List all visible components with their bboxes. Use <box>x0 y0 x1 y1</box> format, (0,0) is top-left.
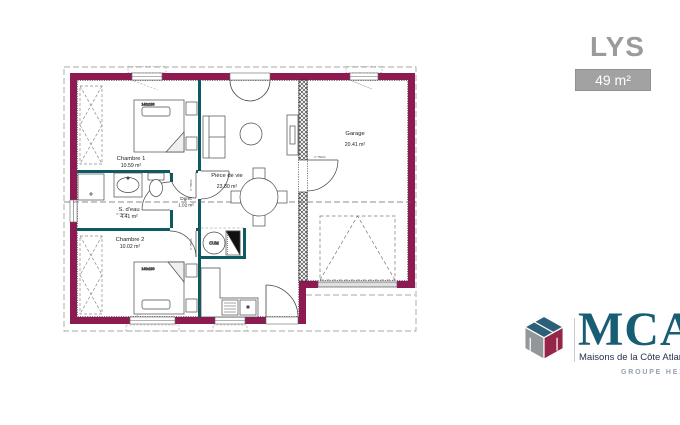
bed-chambre1 <box>134 100 197 152</box>
bed-size-label: 140x190 <box>141 267 154 271</box>
water-heater: CUM <box>203 232 225 254</box>
logo-divider <box>574 318 575 362</box>
room-name-garage: Garage <box>345 131 364 137</box>
kitchen-counter <box>201 268 258 317</box>
logo-acronym: MCA <box>578 302 680 357</box>
door-code-label: P 75004 <box>189 179 193 190</box>
room-area-garage: 20.41 m² <box>345 142 366 148</box>
room-name-chambre2: Chambre 2 <box>116 237 145 243</box>
room-area-piecedevie: 23.80 m² <box>217 184 238 190</box>
chambre1-furniture: 140x190 <box>80 86 197 164</box>
shower <box>78 174 104 200</box>
windows <box>70 67 382 332</box>
page: P 75004 P 75004 P 75004 P 75004 <box>0 0 680 425</box>
room-area-chambre1: 10.59 m² <box>121 163 142 169</box>
area-badge: 49 m² <box>575 69 651 91</box>
logo-group: GROUPE HEXAOM <box>621 369 680 376</box>
room-name-piecedevie: Pièce de vie <box>211 173 243 179</box>
window-chambre1 <box>128 67 166 91</box>
window-bathroom <box>70 200 77 222</box>
livingroom-furniture: CUM <box>201 115 298 317</box>
window-kitchen <box>213 317 247 331</box>
water-heater-label: CUM <box>209 241 219 246</box>
floor-plan-drawing: P 75004 P 75004 P 75004 P 75004 <box>62 64 418 336</box>
door-code-label: P 75004 <box>314 155 325 159</box>
room-area-chambre2: 10.02 m² <box>120 244 141 250</box>
room-name-chambre1: Chambre 1 <box>117 156 146 162</box>
sink <box>114 173 142 197</box>
technical-panel <box>226 231 240 255</box>
sofa <box>203 116 225 158</box>
room-area-sdeau: 4.41 m² <box>120 214 138 220</box>
room-area-dgmt: 1.02 m² <box>178 203 194 208</box>
mca-logo: MCA Maisons de la Côte Atlantique GROUPE… <box>521 311 680 386</box>
wardrobe-chambre2 <box>80 236 102 314</box>
wardrobe-chambre1 <box>80 86 102 164</box>
terrace-door <box>266 285 298 324</box>
door-garage-access <box>307 160 338 191</box>
cube-logo-icon <box>521 314 567 360</box>
room-name-dgmt: Dgmt <box>180 196 192 202</box>
coffee-table <box>240 123 262 145</box>
garage-door <box>318 216 397 287</box>
logo-name: Maisons de la Côte Atlantique <box>579 352 680 363</box>
tv-unit <box>287 115 298 155</box>
bathroom-fixtures <box>78 173 164 200</box>
model-title: LYS <box>575 31 660 63</box>
room-name-sdeau: S. d'eau <box>118 207 139 213</box>
floor-plan: P 75004 P 75004 P 75004 P 75004 <box>62 64 418 336</box>
entrance-door <box>230 73 270 101</box>
window-garage <box>346 67 382 90</box>
toilet <box>148 173 164 197</box>
door-code-label: P 75004 <box>189 238 193 249</box>
bed-size-label: 140x190 <box>141 103 154 107</box>
garage-firewall <box>299 80 307 281</box>
